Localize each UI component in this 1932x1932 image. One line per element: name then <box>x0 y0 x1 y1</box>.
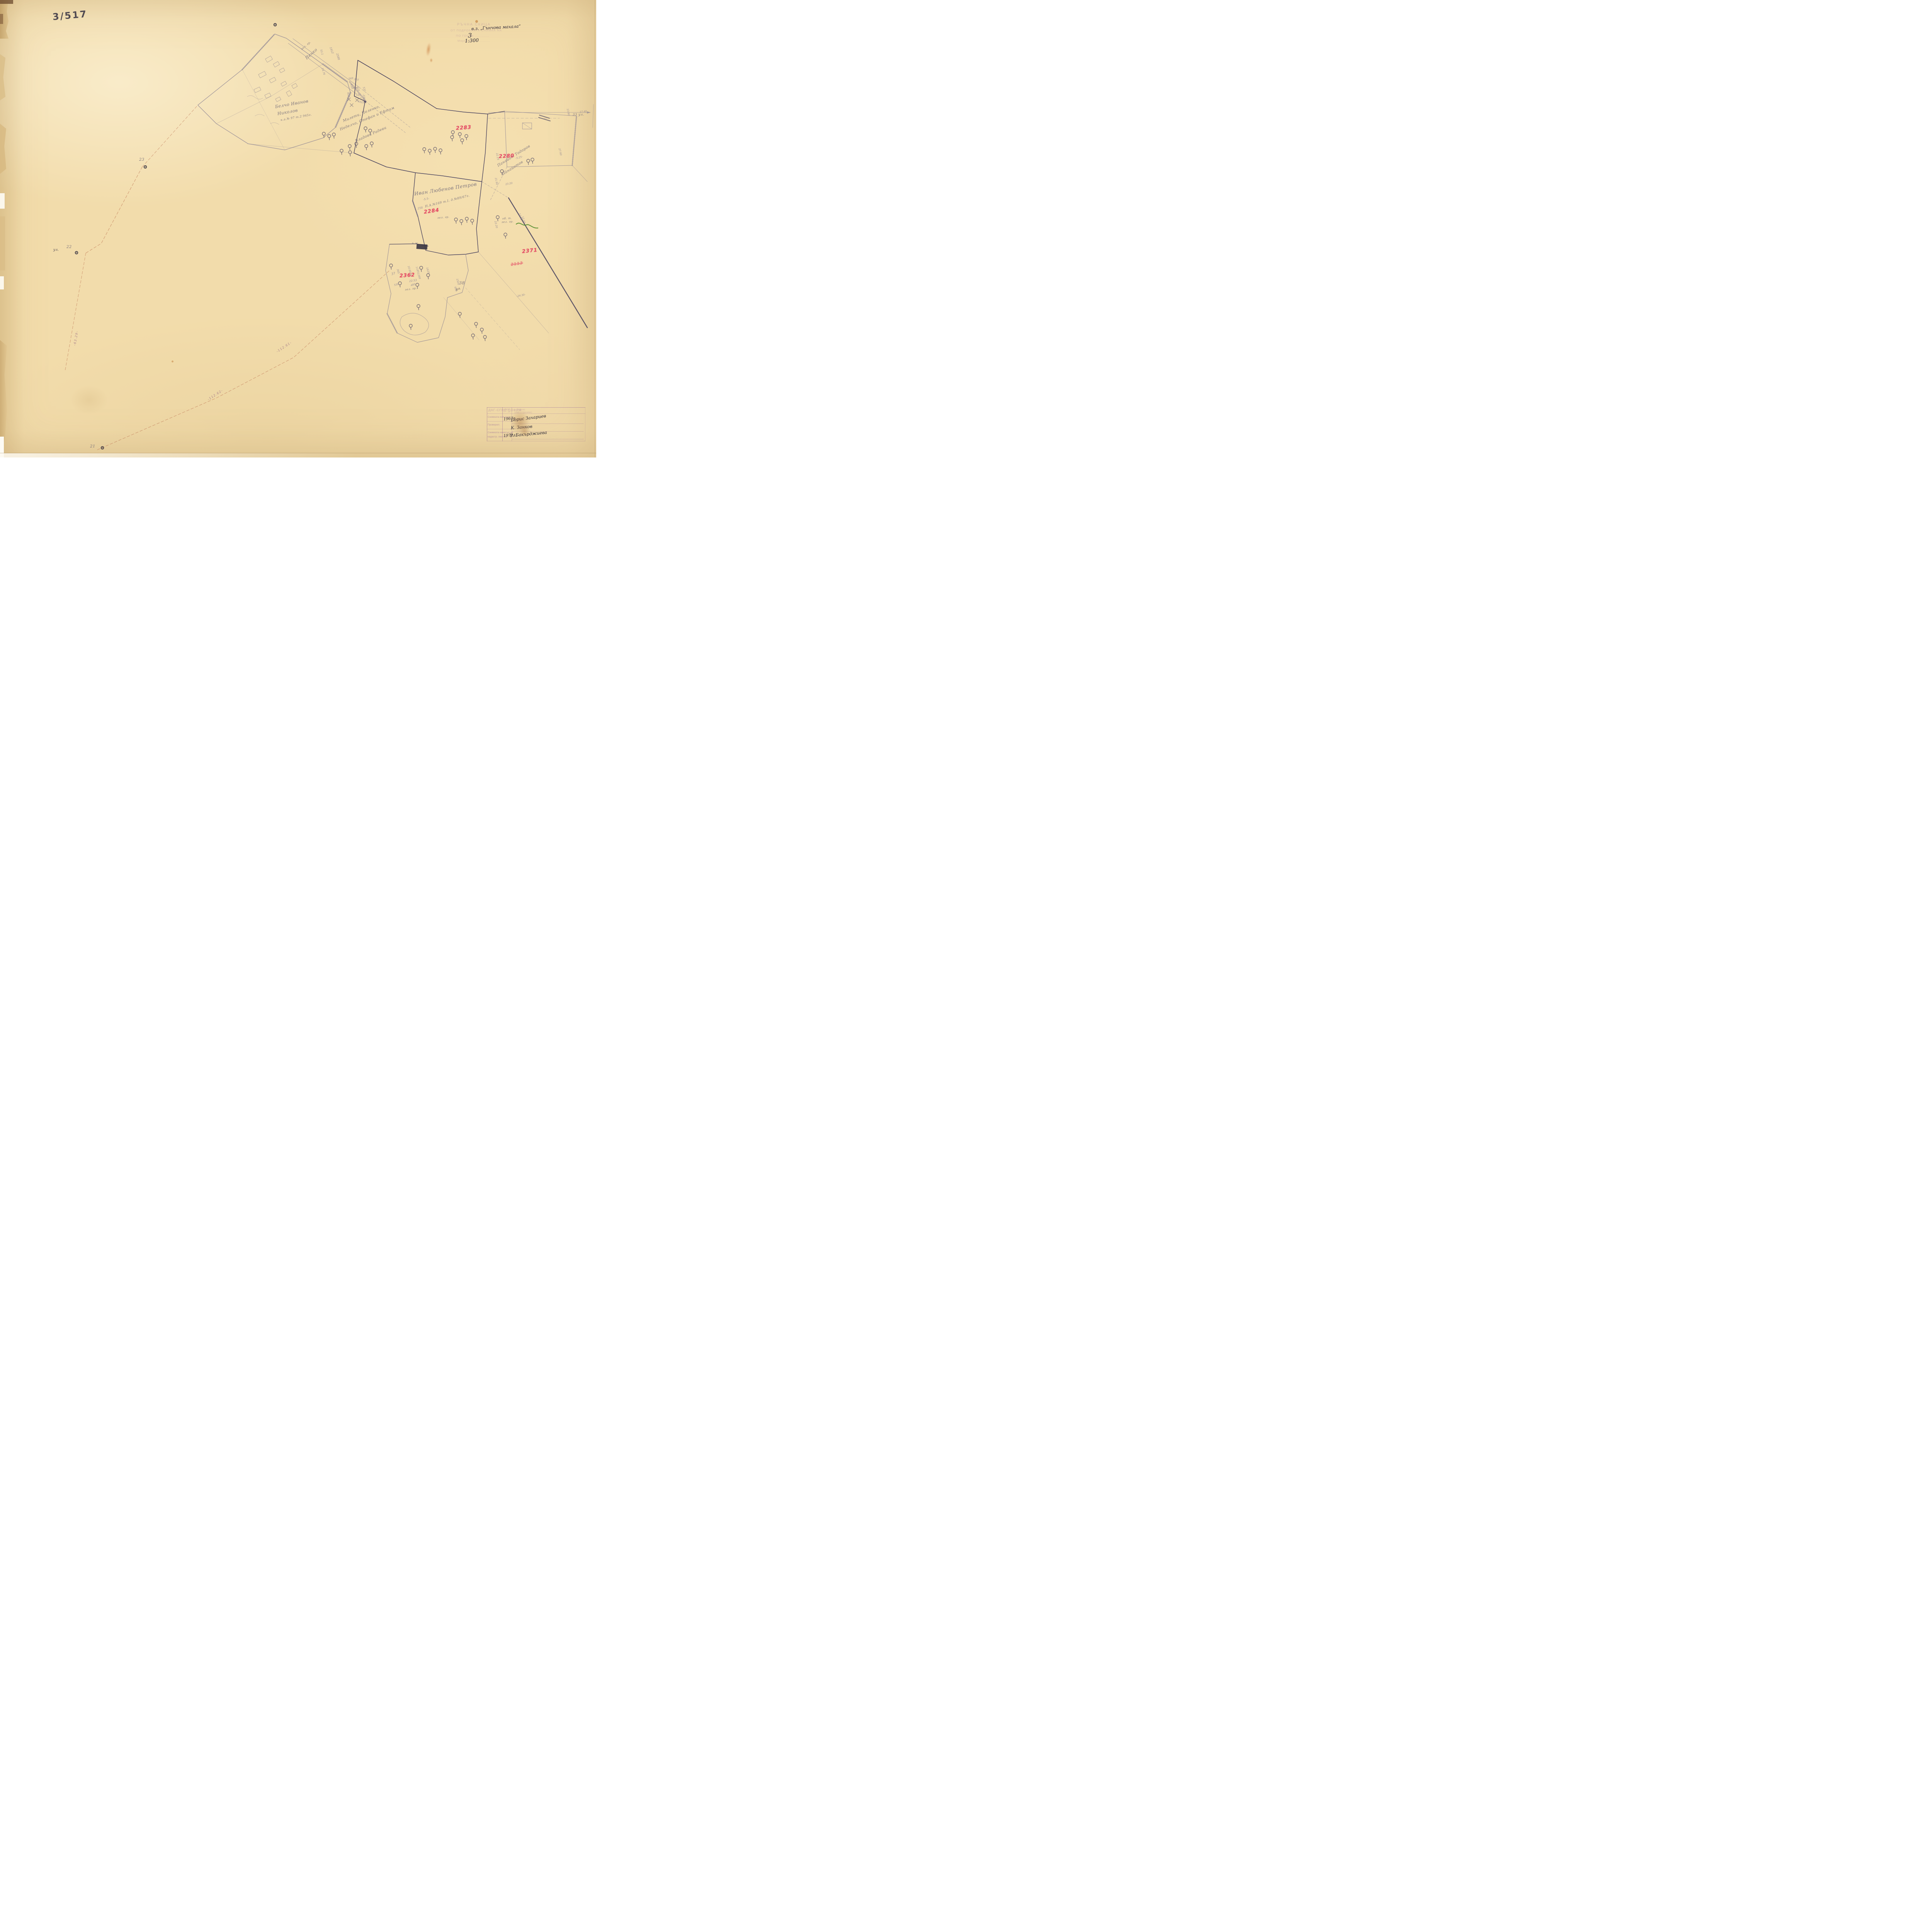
map-label: ул. <box>53 248 59 252</box>
tree-symbol <box>364 127 367 132</box>
x-mark-symbols <box>347 98 359 107</box>
col-date: дата <box>504 408 510 411</box>
tree-symbol <box>328 134 331 140</box>
map-label: об. т. <box>502 217 512 220</box>
tree-symbol <box>370 142 373 147</box>
tree-symbol <box>483 335 486 341</box>
map-label: 310 <box>354 78 359 82</box>
survey-point-dot <box>145 167 146 167</box>
tree-symbol <box>471 219 474 224</box>
tree-symbol <box>504 233 507 238</box>
tree-symbol <box>471 334 474 339</box>
col-signature-sub: (Име и презиме) <box>514 412 532 414</box>
tree-symbol <box>434 147 437 153</box>
col-signature: Подпис <box>517 408 525 411</box>
survey-dashed-lines <box>65 105 389 450</box>
parcel-number-red: 2280 <box>499 153 515 160</box>
tree-symbol <box>458 312 461 318</box>
tree-symbol <box>349 151 352 156</box>
tree-symbol <box>531 158 534 163</box>
tree-symbol <box>451 131 454 136</box>
tree-symbol <box>461 139 464 144</box>
tree-symbol <box>365 145 368 150</box>
map-linework-svg: ★ <box>0 0 596 457</box>
tree-symbol <box>332 133 335 138</box>
tree-symbol <box>389 264 393 269</box>
map-label: 1 <box>354 90 356 93</box>
tape-residue <box>0 0 13 4</box>
survey-point-symbols <box>75 24 277 449</box>
paper-bottom-gap <box>0 453 358 457</box>
tree-symbol <box>465 217 468 223</box>
village-buildings <box>254 56 298 102</box>
map-label: п.ж <box>412 242 418 245</box>
survey-point-dot <box>275 24 276 25</box>
col-date-range: от – до <box>503 411 510 413</box>
tree-symbol <box>348 145 351 150</box>
map-label: 23 <box>139 158 145 162</box>
paper-right-edge <box>595 0 595 457</box>
map-label: 21 <box>90 444 95 449</box>
tree-symbol <box>451 136 454 141</box>
tree-symbol <box>423 148 426 153</box>
map-label: -330- <box>362 94 366 101</box>
tree-symbol <box>465 134 468 140</box>
tree-symbol <box>458 133 461 138</box>
tree-symbol <box>496 216 499 221</box>
tree-symbol <box>409 324 412 330</box>
parcel-number-red: 2283 <box>456 124 471 131</box>
village-block-outline <box>198 34 350 150</box>
tree-symbol <box>454 218 457 223</box>
row-checked-by: Проверил: <box>488 423 500 426</box>
map-label: 569 <box>348 77 353 80</box>
tree-symbol <box>428 149 431 155</box>
map-label: зел. гр. <box>502 220 514 224</box>
tree-symbol <box>322 132 325 138</box>
tree-symbol <box>427 274 430 279</box>
x-mark <box>350 104 353 107</box>
tape-residue <box>0 14 3 24</box>
map-label: 38 <box>459 281 465 286</box>
tree-symbol <box>460 219 463 225</box>
tree-symbol <box>439 149 442 154</box>
bottom-parcel-outline <box>386 244 468 342</box>
map-label: 33 ул. <box>573 113 584 117</box>
map-scale: 1:300 <box>465 37 479 44</box>
survey-point-dot <box>76 252 77 253</box>
paper-tear-white <box>0 193 5 209</box>
paper-tear-white <box>0 276 4 289</box>
tree-symbol <box>527 159 530 165</box>
tree-symbol <box>474 322 478 328</box>
tree-symbol <box>417 304 420 310</box>
survey-point-dot <box>102 447 103 448</box>
tape-residue <box>0 216 5 270</box>
map-label: 22 <box>66 245 72 249</box>
stamp-line3: ПО ГОП № ............ <box>456 34 489 37</box>
scanned-cadastral-sketch: ★ 3/517 РЪЧНА СКИЦА ОТ ПОДРОБНАТА СНИМКА… <box>0 0 596 457</box>
green-mark <box>516 223 538 228</box>
tree-symbol <box>420 266 423 272</box>
map-label: 170 <box>356 93 361 97</box>
parcel-boundaries-ink <box>354 60 587 328</box>
tree-symbol <box>480 328 483 333</box>
parcel-number-red: 2362 <box>399 272 415 279</box>
map-label: 830 <box>347 92 350 97</box>
